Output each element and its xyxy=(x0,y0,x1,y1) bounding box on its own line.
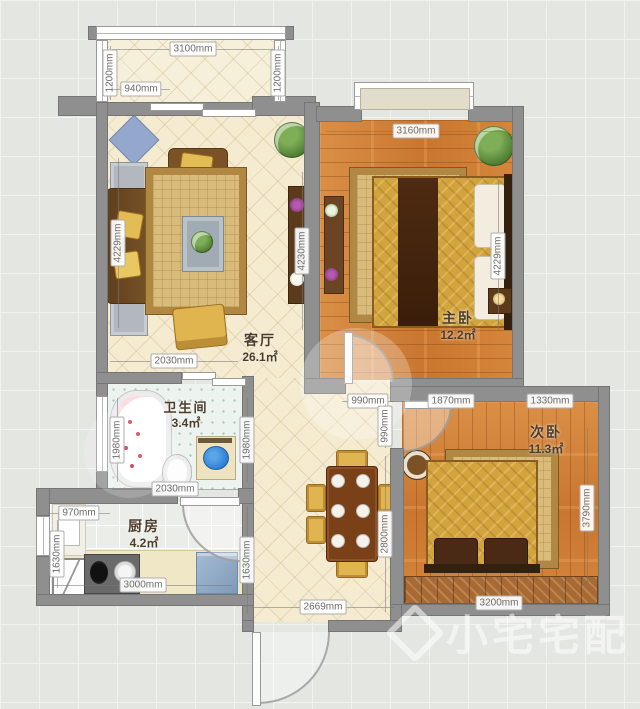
dim-balcony-right: 1200mm xyxy=(271,46,285,100)
watermark-ring xyxy=(300,328,412,440)
dim-hall-990: 990mm xyxy=(378,404,392,448)
floorplan-canvas: 3100mm 1200mm 1200mm 940mm 4229mm 4230mm… xyxy=(0,0,640,709)
dim-balcony-width: 3100mm xyxy=(112,42,274,56)
wall xyxy=(242,620,254,632)
balcony-sliding-door xyxy=(150,103,204,111)
plate-icon xyxy=(356,534,370,548)
bathroom-label: 卫生间 3.4㎡ xyxy=(154,400,218,431)
dim-living-right: 4230mm xyxy=(295,172,309,330)
master-cabinet-purple-deco xyxy=(325,268,338,281)
balcony-window xyxy=(96,26,286,40)
master-bedroom-label: 主卧 12.2㎡ xyxy=(426,310,490,343)
balcony-sliding-door xyxy=(202,109,256,117)
room-name: 厨房 xyxy=(112,518,176,536)
dim-bath-bottom: 2030mm xyxy=(112,482,238,496)
dining-chair xyxy=(306,484,326,512)
coffee-table-plant-icon xyxy=(191,231,213,253)
kitchen-door-leaf xyxy=(180,497,240,506)
washing-machine-panel xyxy=(198,438,232,443)
dim-bath-left: 1980mm xyxy=(110,398,124,482)
entry-door-swing xyxy=(258,632,330,704)
master-bay-sill xyxy=(360,88,470,110)
bathroom-sliding-door xyxy=(182,372,216,380)
room-name: 次卧 xyxy=(514,424,578,442)
plate-icon xyxy=(331,474,345,488)
plate-icon xyxy=(331,504,345,518)
master-cabinet-flower-deco xyxy=(325,204,338,217)
dim-living-bottom: 2030mm xyxy=(110,354,238,368)
wall xyxy=(598,386,610,616)
dining-chair xyxy=(306,516,326,544)
wall xyxy=(512,106,524,394)
dim-living-left: 4229mm xyxy=(111,158,125,328)
second-headboard xyxy=(424,564,540,573)
dim-balcony-opening: 940mm xyxy=(112,82,170,96)
dim-hall-bottom: 2669mm xyxy=(252,600,394,614)
second-bedroom-label: 次卧 11.3㎡ xyxy=(514,424,578,457)
dim-hall-1630: 1630mm xyxy=(240,506,254,614)
master-bed-runner xyxy=(398,178,438,326)
plate-icon xyxy=(356,504,370,518)
room-area: 4.2㎡ xyxy=(112,536,176,551)
dim-second-right: 3790mm xyxy=(580,428,594,588)
wall xyxy=(328,620,402,632)
bathroom-sliding-door xyxy=(212,378,246,386)
dim-second-top-right: 1330mm xyxy=(502,394,598,408)
dim-second-top-left: 1870mm xyxy=(402,394,500,408)
kitchen-window xyxy=(36,516,50,556)
room-area: 3.4㎡ xyxy=(154,416,218,431)
dim-hall-2800: 2800mm xyxy=(378,456,392,612)
room-name: 主卧 xyxy=(426,310,490,328)
room-name: 客厅 xyxy=(228,332,292,350)
room-name: 卫生间 xyxy=(154,400,218,416)
dim-master-top: 3160mm xyxy=(326,124,506,138)
dim-bath-right: 1980mm xyxy=(240,398,254,482)
wall xyxy=(96,372,182,384)
wall xyxy=(36,594,254,606)
washing-machine-drum xyxy=(203,446,229,470)
lounge-chair-bottom xyxy=(172,303,228,350)
entry-door-leaf xyxy=(252,632,261,706)
wall xyxy=(238,488,254,504)
plate-icon xyxy=(356,474,370,488)
kitchen-label: 厨房 4.2㎡ xyxy=(112,518,176,551)
plate-icon xyxy=(331,534,345,548)
dim-second-bottom: 3200mm xyxy=(402,596,596,610)
room-area: 12.2㎡ xyxy=(426,328,490,343)
room-area: 11.3㎡ xyxy=(514,442,578,457)
dim-kitchen-bottom: 3000mm xyxy=(54,578,232,592)
dim-kitchen-top: 970mm xyxy=(48,506,110,520)
dim-master-right: 4229mm xyxy=(491,182,505,330)
